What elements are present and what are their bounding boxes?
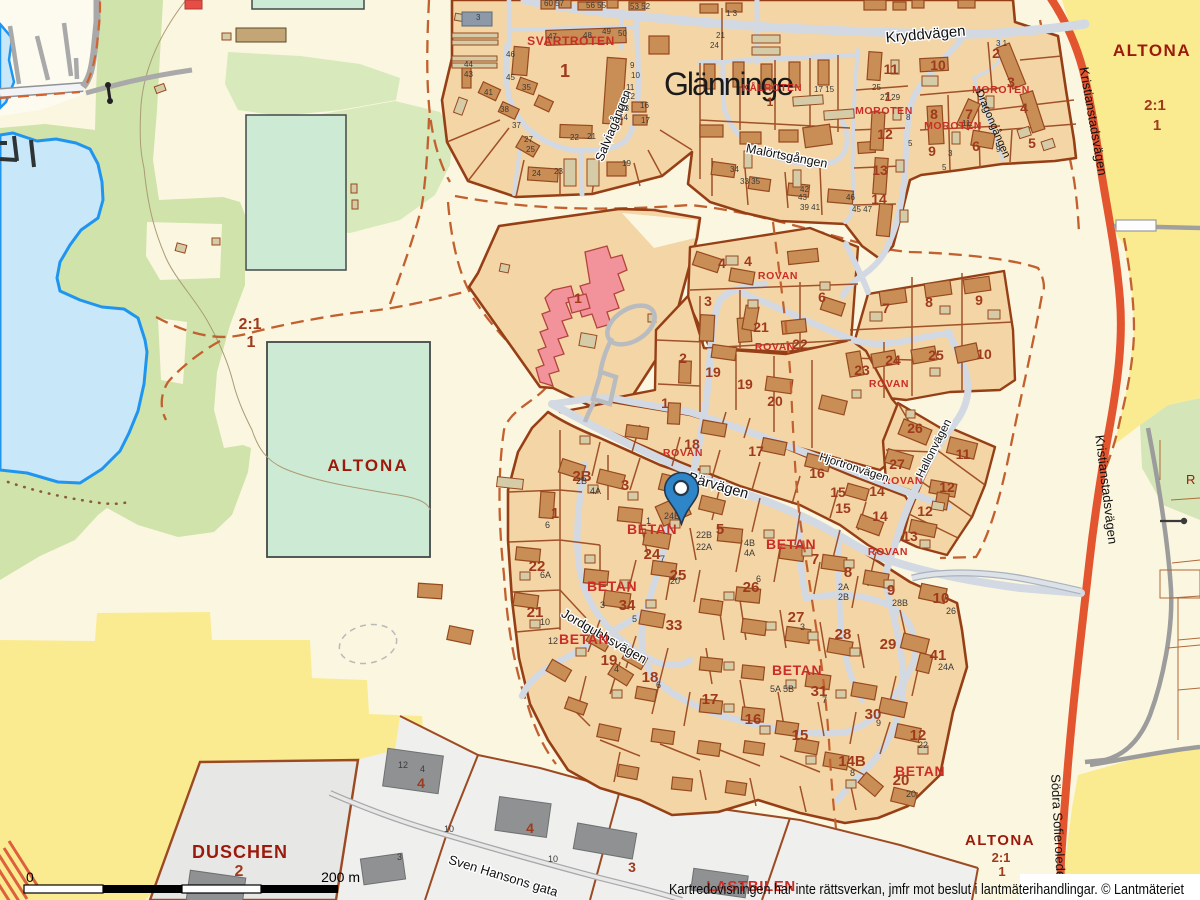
svg-text:9: 9 xyxy=(630,61,635,70)
svg-text:19: 19 xyxy=(705,364,721,380)
svg-text:8: 8 xyxy=(906,113,911,122)
svg-text:ALTONA: ALTONA xyxy=(327,456,408,475)
svg-text:4: 4 xyxy=(526,820,534,836)
svg-text:ROVAN: ROVAN xyxy=(755,341,795,353)
svg-text:2:1: 2:1 xyxy=(992,850,1011,865)
svg-text:3: 3 xyxy=(397,852,402,862)
svg-text:14: 14 xyxy=(619,113,628,122)
svg-text:ALTONA: ALTONA xyxy=(1113,41,1191,60)
svg-text:24: 24 xyxy=(885,352,901,368)
svg-text:12: 12 xyxy=(939,479,955,495)
svg-text:43: 43 xyxy=(464,70,473,79)
svg-text:4: 4 xyxy=(420,764,425,774)
svg-text:22: 22 xyxy=(918,740,928,750)
svg-text:46: 46 xyxy=(846,193,855,202)
svg-text:1: 1 xyxy=(574,290,582,306)
svg-text:7: 7 xyxy=(822,695,827,705)
svg-text:34: 34 xyxy=(730,165,739,174)
svg-text:9: 9 xyxy=(928,143,936,159)
svg-text:60 57: 60 57 xyxy=(544,0,565,8)
svg-text:45 47: 45 47 xyxy=(852,205,873,214)
svg-text:19: 19 xyxy=(622,159,631,168)
svg-text:2: 2 xyxy=(235,863,244,880)
svg-text:2:1: 2:1 xyxy=(1144,97,1166,114)
svg-text:48: 48 xyxy=(583,31,592,40)
svg-text:5A 5B: 5A 5B xyxy=(770,684,794,694)
svg-text:12: 12 xyxy=(626,92,635,101)
svg-text:6: 6 xyxy=(656,680,661,690)
svg-text:4: 4 xyxy=(1020,100,1028,116)
svg-text:13: 13 xyxy=(902,528,918,544)
svg-text:20: 20 xyxy=(767,393,783,409)
svg-text:ROVAN: ROVAN xyxy=(869,378,909,390)
svg-text:2B: 2B xyxy=(576,476,587,486)
svg-text:8: 8 xyxy=(850,768,855,778)
svg-text:50: 50 xyxy=(618,29,627,38)
svg-text:11: 11 xyxy=(884,61,899,77)
svg-text:6: 6 xyxy=(972,138,980,154)
svg-text:200 m: 200 m xyxy=(321,869,360,885)
svg-text:2:1: 2:1 xyxy=(238,316,261,333)
svg-text:16: 16 xyxy=(640,101,649,110)
svg-text:10: 10 xyxy=(631,71,640,80)
svg-text:15: 15 xyxy=(830,484,846,500)
svg-text:KÅLROTEN: KÅLROTEN xyxy=(742,81,802,94)
svg-text:ALTONA: ALTONA xyxy=(965,832,1035,849)
svg-text:2: 2 xyxy=(679,350,687,366)
svg-text:MOROTEN: MOROTEN xyxy=(855,105,913,117)
svg-text:6: 6 xyxy=(545,520,550,530)
svg-text:SVARTROTEN: SVARTROTEN xyxy=(527,34,615,48)
svg-text:4: 4 xyxy=(744,253,752,269)
svg-text:27: 27 xyxy=(889,456,905,472)
svg-text:13: 13 xyxy=(872,162,888,178)
svg-text:10: 10 xyxy=(444,824,454,834)
svg-text:16: 16 xyxy=(809,465,825,481)
svg-text:17: 17 xyxy=(748,443,764,459)
svg-text:38: 38 xyxy=(500,105,509,114)
svg-text:12: 12 xyxy=(877,126,893,142)
svg-text:BETAN: BETAN xyxy=(627,521,677,537)
svg-text:16: 16 xyxy=(745,711,762,728)
svg-text:5: 5 xyxy=(632,614,637,624)
svg-text:12: 12 xyxy=(548,636,558,646)
svg-text:15: 15 xyxy=(835,500,851,516)
svg-text:15: 15 xyxy=(792,727,809,744)
svg-text:4: 4 xyxy=(614,664,619,674)
svg-text:9: 9 xyxy=(996,145,1001,154)
svg-text:53 52: 53 52 xyxy=(630,2,651,11)
svg-text:20: 20 xyxy=(906,789,916,799)
svg-text:3: 3 xyxy=(948,149,953,158)
svg-text:6A: 6A xyxy=(540,570,551,580)
svg-text:41: 41 xyxy=(484,88,493,97)
svg-text:20: 20 xyxy=(893,772,910,789)
svg-text:11: 11 xyxy=(956,446,971,462)
svg-text:9: 9 xyxy=(887,582,895,599)
svg-text:3: 3 xyxy=(476,13,481,22)
svg-text:26: 26 xyxy=(946,606,956,616)
svg-text:49: 49 xyxy=(602,27,611,36)
svg-text:25: 25 xyxy=(928,347,944,363)
svg-text:3: 3 xyxy=(621,477,629,494)
svg-text:23: 23 xyxy=(854,362,870,378)
svg-text:17 15: 17 15 xyxy=(814,85,835,94)
svg-text:DUSCHEN: DUSCHEN xyxy=(192,842,288,862)
svg-text:43: 43 xyxy=(798,193,807,202)
svg-text:3: 3 xyxy=(600,600,605,610)
svg-text:8: 8 xyxy=(844,564,852,581)
svg-text:34: 34 xyxy=(619,597,636,614)
svg-text:4A: 4A xyxy=(744,548,755,558)
svg-text:BETAN: BETAN xyxy=(587,578,637,594)
svg-text:BETAN: BETAN xyxy=(559,631,609,647)
svg-text:27 29: 27 29 xyxy=(880,93,901,102)
svg-text:BETAN: BETAN xyxy=(772,662,822,678)
svg-text:39 41: 39 41 xyxy=(800,203,821,212)
svg-text:35: 35 xyxy=(522,83,531,92)
svg-text:1: 1 xyxy=(551,505,559,522)
svg-text:20: 20 xyxy=(670,576,680,586)
svg-text:26: 26 xyxy=(907,420,923,436)
svg-text:21: 21 xyxy=(753,319,769,335)
svg-text:10: 10 xyxy=(933,590,950,607)
svg-text:24: 24 xyxy=(710,41,719,50)
svg-text:13: 13 xyxy=(620,104,629,113)
svg-text:3: 3 xyxy=(628,859,636,875)
svg-text:29: 29 xyxy=(880,636,897,653)
svg-text:33 35: 33 35 xyxy=(740,177,761,186)
svg-text:9: 9 xyxy=(975,292,983,308)
svg-text:37: 37 xyxy=(512,121,521,130)
svg-text:28B: 28B xyxy=(892,598,908,608)
svg-text:3: 3 xyxy=(800,622,805,632)
svg-text:5: 5 xyxy=(942,163,947,172)
svg-text:7: 7 xyxy=(811,551,819,568)
svg-text:ROVAN: ROVAN xyxy=(868,546,908,558)
svg-text:27: 27 xyxy=(524,135,533,144)
svg-text:24A: 24A xyxy=(938,662,954,672)
svg-text:5: 5 xyxy=(1028,135,1036,151)
svg-text:22B: 22B xyxy=(696,530,712,540)
svg-text:4B: 4B xyxy=(744,538,755,548)
svg-text:BETAN: BETAN xyxy=(766,536,816,552)
svg-text:47: 47 xyxy=(548,32,557,41)
svg-text:4: 4 xyxy=(417,775,425,791)
svg-text:21: 21 xyxy=(587,132,596,141)
svg-text:2A: 2A xyxy=(838,582,849,592)
svg-text:12: 12 xyxy=(917,503,933,519)
svg-text:28: 28 xyxy=(835,626,852,643)
svg-text:19: 19 xyxy=(737,376,753,392)
svg-text:25: 25 xyxy=(526,145,535,154)
svg-text:ROVAN: ROVAN xyxy=(663,447,703,459)
svg-text:1: 1 xyxy=(661,395,669,411)
svg-text:24: 24 xyxy=(532,169,541,178)
svg-text:45: 45 xyxy=(506,73,515,82)
svg-text:44: 44 xyxy=(464,60,473,69)
svg-text:56 55: 56 55 xyxy=(586,1,607,10)
svg-text:8: 8 xyxy=(925,294,933,310)
svg-text:33: 33 xyxy=(666,617,683,634)
svg-text:21: 21 xyxy=(716,31,725,40)
svg-text:22A: 22A xyxy=(696,542,712,552)
svg-text:46: 46 xyxy=(506,50,515,59)
svg-text:6: 6 xyxy=(818,289,826,305)
svg-text:7: 7 xyxy=(660,554,665,564)
svg-text:1: 1 xyxy=(1153,117,1161,134)
svg-text:1: 1 xyxy=(560,61,570,81)
svg-text:1: 1 xyxy=(767,95,774,109)
svg-text:6: 6 xyxy=(756,574,761,584)
svg-text:17: 17 xyxy=(702,691,719,708)
svg-text:1: 1 xyxy=(998,864,1005,879)
svg-text:Kartredovisningen har inte rät: Kartredovisningen har inte rättsverkan, … xyxy=(669,881,1185,898)
svg-text:12: 12 xyxy=(398,760,408,770)
svg-text:25: 25 xyxy=(872,83,881,92)
svg-text:2B: 2B xyxy=(838,592,849,602)
svg-text:22: 22 xyxy=(570,133,579,142)
svg-text:ROVAN: ROVAN xyxy=(758,270,798,282)
svg-text:14: 14 xyxy=(872,508,888,524)
svg-text:10: 10 xyxy=(548,854,558,864)
svg-text:14: 14 xyxy=(871,191,887,207)
svg-text:10: 10 xyxy=(930,57,946,73)
svg-text:0: 0 xyxy=(26,869,34,885)
svg-text:17: 17 xyxy=(641,116,650,125)
svg-text:8: 8 xyxy=(930,106,938,122)
svg-text:5: 5 xyxy=(908,139,913,148)
svg-text:4A: 4A xyxy=(590,486,601,496)
svg-text:1: 1 xyxy=(646,516,651,526)
svg-text:1 3: 1 3 xyxy=(726,9,738,18)
svg-text:3: 3 xyxy=(1007,74,1015,90)
svg-text:5: 5 xyxy=(716,521,724,538)
svg-text:3: 3 xyxy=(704,293,712,309)
svg-text:10: 10 xyxy=(976,346,992,362)
svg-text:11: 11 xyxy=(626,83,635,92)
svg-text:24: 24 xyxy=(644,546,661,563)
svg-text:4: 4 xyxy=(718,255,726,271)
svg-text:10: 10 xyxy=(540,617,550,627)
svg-text:7: 7 xyxy=(882,300,890,316)
svg-text:R: R xyxy=(1186,472,1195,487)
svg-text:23: 23 xyxy=(554,167,563,176)
svg-text:11: 11 xyxy=(962,119,971,128)
svg-text:9: 9 xyxy=(876,718,881,728)
svg-text:1: 1 xyxy=(247,334,256,351)
svg-text:3 1: 3 1 xyxy=(996,39,1008,48)
